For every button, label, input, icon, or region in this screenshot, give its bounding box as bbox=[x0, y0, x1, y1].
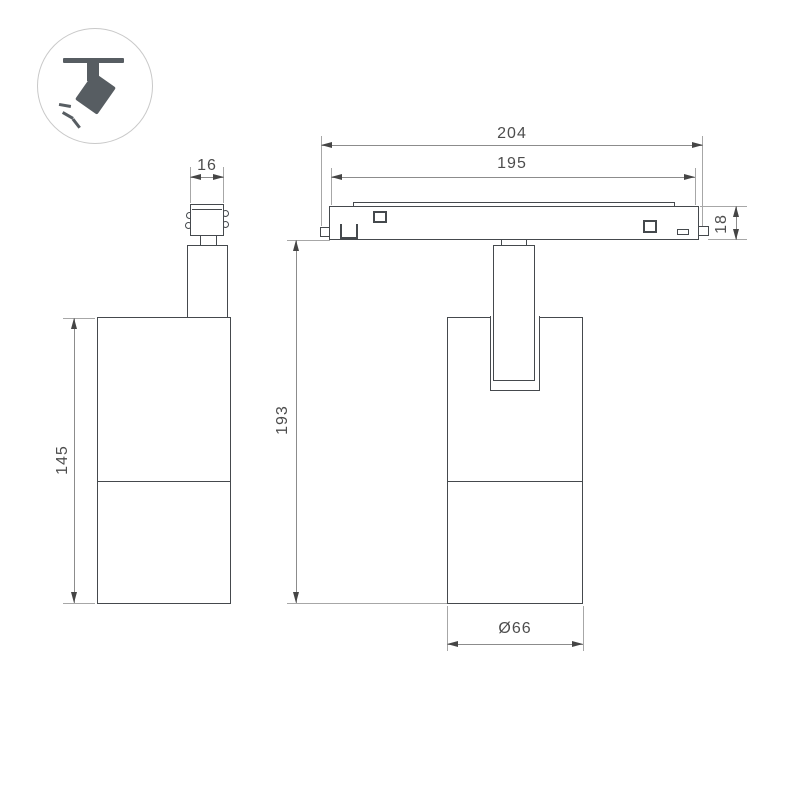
dimension-label-body-diameter: Ø66 bbox=[465, 620, 565, 638]
dimension-label-body-height: 145 bbox=[54, 420, 72, 500]
dimension-line-diameter bbox=[447, 644, 583, 645]
adapter-top-line bbox=[192, 209, 222, 210]
arrowhead bbox=[572, 641, 583, 647]
arrowhead bbox=[71, 592, 77, 603]
icon-light-ray bbox=[72, 118, 81, 128]
spotlight-icon bbox=[37, 28, 153, 144]
track-right-end-tab bbox=[698, 226, 709, 236]
dimension-line-204 bbox=[321, 145, 703, 146]
track-slot-detail bbox=[677, 229, 690, 235]
arrowhead bbox=[692, 142, 703, 148]
dimension-label-adapter-width: 16 bbox=[172, 157, 242, 175]
extension-line bbox=[63, 603, 95, 604]
dimension-line-195 bbox=[331, 177, 695, 178]
dimension-label-track-height: 18 bbox=[713, 204, 731, 244]
track-square-hole-left bbox=[373, 211, 387, 224]
extension-line bbox=[321, 136, 322, 226]
dimension-label-fixture-height: 193 bbox=[274, 380, 292, 460]
front-body-seam-line bbox=[448, 481, 583, 482]
arrowhead bbox=[684, 174, 695, 180]
extension-line bbox=[702, 136, 703, 226]
technical-drawing-canvas: 16 145 204 195 18 bbox=[0, 0, 800, 800]
extension-line bbox=[287, 603, 447, 604]
front-stem bbox=[493, 245, 535, 381]
arrowhead bbox=[293, 240, 299, 251]
extension-line bbox=[63, 318, 95, 319]
side-lamp-body bbox=[97, 317, 231, 604]
dimension-label-track-overall-width: 204 bbox=[462, 125, 562, 143]
arrowhead bbox=[447, 641, 458, 647]
dimension-line-193 bbox=[296, 240, 297, 603]
side-stem bbox=[187, 245, 228, 319]
side-body-seam-line bbox=[97, 481, 230, 482]
dimension-line-145 bbox=[74, 318, 75, 603]
arrowhead bbox=[733, 229, 739, 240]
arrowhead bbox=[71, 318, 77, 329]
arrowhead bbox=[293, 592, 299, 603]
arrowhead bbox=[321, 142, 332, 148]
icon-light-ray bbox=[59, 103, 71, 108]
icon-lamp-head bbox=[75, 72, 116, 115]
dimension-label-track-inner-width: 195 bbox=[462, 155, 562, 173]
arrowhead bbox=[331, 174, 342, 180]
arrowhead bbox=[733, 206, 739, 217]
track-clip-detail bbox=[340, 224, 358, 239]
track-square-hole-right bbox=[643, 220, 657, 233]
